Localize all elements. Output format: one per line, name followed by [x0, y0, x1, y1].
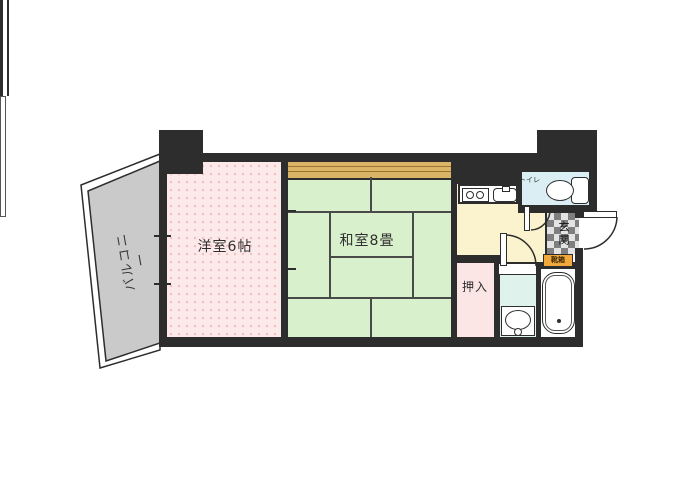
wall-top: [203, 153, 537, 162]
tap-icon: [502, 186, 510, 192]
wall-right-upper: [575, 213, 583, 218]
wall-room-divider: [281, 162, 288, 337]
tatami-line: [370, 297, 372, 337]
balcony-window: [0, 0, 9, 96]
closet-oshiire: [457, 263, 494, 337]
basin-tap-icon: [514, 328, 522, 336]
balcony-label: バルコニー: [114, 225, 144, 297]
toilet-door: [524, 206, 530, 231]
entrance-label: 玄関: [552, 212, 569, 256]
wall-above-counter: [452, 162, 522, 184]
window-tick: [154, 235, 171, 237]
window-sash-line: [2, 0, 3, 96]
sink-icon: [493, 188, 517, 202]
tatami-line: [370, 177, 372, 213]
drain-icon: [557, 319, 561, 323]
floorplan-canvas: バルコニー: [0, 0, 700, 495]
wall-closet-top: [451, 255, 500, 263]
wall-bath-divider: [536, 269, 541, 337]
japanese-room-label: 和室8畳: [322, 233, 412, 249]
fusuma-tick: [283, 268, 296, 270]
entrance-door: [583, 211, 617, 218]
wall-toilet-right: [589, 172, 597, 213]
wood-grain-line: [288, 166, 452, 167]
wall-pillar-topright: [537, 130, 597, 172]
fusuma-opening: [0, 96, 6, 217]
window-tick: [154, 283, 171, 285]
tatami-line: [329, 211, 331, 299]
tatami-line: [412, 211, 414, 299]
washbasin-icon: [501, 306, 535, 336]
wall-left: [159, 162, 167, 347]
burner-icon: [466, 191, 474, 199]
kitchen-counter: [458, 184, 518, 204]
bathtub-icon: [542, 272, 575, 334]
western-room-label: 洋室6帖: [180, 239, 270, 255]
closet-label: 押入: [455, 281, 495, 295]
wall-bottom: [159, 337, 583, 347]
fusuma-tick: [283, 210, 296, 212]
burner-icon: [476, 191, 484, 199]
wall-kitchen-divider: [451, 162, 457, 337]
washroom-door: [500, 233, 507, 266]
wood-grain-line: [288, 171, 452, 172]
stove-icon: [462, 188, 489, 202]
toilet-icon: [546, 180, 574, 201]
basin-bowl: [505, 310, 531, 330]
tatami-line: [329, 256, 414, 258]
toilet-label: トイレ: [519, 176, 549, 184]
wall-toilet-left: [518, 162, 522, 207]
